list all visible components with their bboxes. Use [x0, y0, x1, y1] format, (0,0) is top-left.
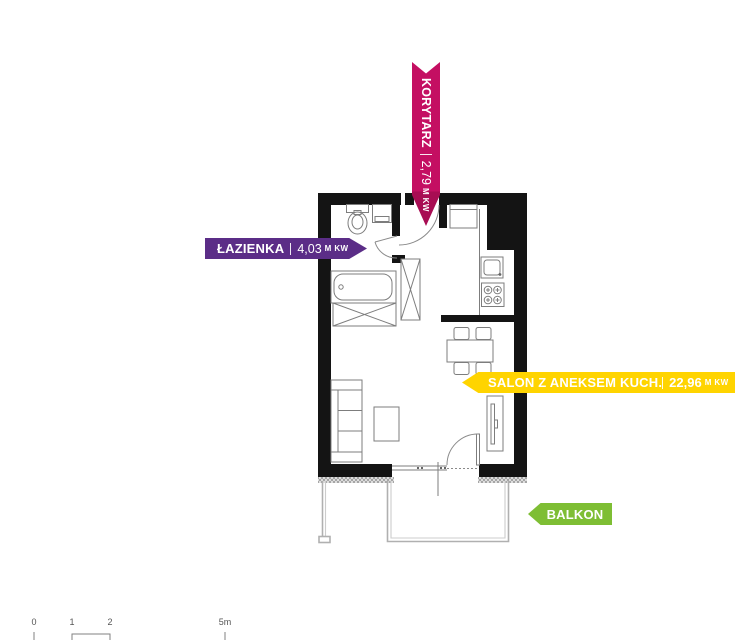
coffee-table	[374, 407, 399, 441]
washbasin-cabinet	[373, 205, 392, 223]
tall-wardrobe	[401, 259, 420, 320]
label-salon: SALON Z ANEKSEM KUCH. 22,96 M KW	[462, 372, 735, 393]
toilet	[347, 205, 369, 235]
chair	[454, 363, 469, 375]
scale-bar	[34, 632, 225, 640]
window	[392, 462, 447, 496]
dining-table	[447, 328, 493, 375]
kitchen-sink	[481, 257, 503, 278]
scale-tick-label: 0	[31, 617, 36, 627]
room-name: ŁAZIENKA	[217, 241, 284, 256]
balcony-railing	[319, 481, 509, 543]
label-balkon: BALKON	[528, 503, 612, 525]
chair	[476, 328, 491, 340]
fridge	[450, 205, 477, 229]
scale-tick-label: 5m	[219, 617, 232, 627]
room-area: 4,03	[297, 242, 321, 256]
room-area: 2,79	[419, 161, 433, 185]
floor-plan-page: KORYTARZ 2,79 M KW ŁAZIENKA 4,03 M KW SA…	[0, 0, 739, 640]
balcony-door	[447, 434, 480, 469]
entrance-door	[399, 205, 439, 245]
wall-hatching	[318, 477, 527, 483]
room-name: KORYTARZ	[419, 78, 433, 148]
wardrobe	[333, 303, 396, 326]
bathtub	[331, 271, 396, 303]
floor-plan-drawing	[0, 0, 739, 640]
label-divider	[662, 377, 663, 389]
label-divider	[420, 154, 432, 155]
room-area-unit: M KW	[325, 244, 349, 253]
label-lazienka: ŁAZIENKA 4,03 M KW	[205, 238, 367, 259]
bathroom-door	[375, 236, 397, 258]
scale-tick-label: 1	[69, 617, 74, 627]
room-area-unit: M KW	[422, 188, 431, 212]
stove	[482, 283, 505, 307]
tv-stand	[487, 396, 503, 451]
chair	[454, 328, 469, 340]
label-korytarz: KORYTARZ 2,79 M KW	[412, 62, 440, 226]
scale-tick-label: 2	[107, 617, 112, 627]
sofa	[331, 380, 362, 462]
room-area-unit: M KW	[705, 378, 729, 387]
label-divider	[290, 243, 291, 255]
room-name: SALON Z ANEKSEM KUCH.	[488, 375, 662, 390]
room-name: BALKON	[547, 507, 604, 522]
room-area: 22,96	[669, 375, 702, 390]
